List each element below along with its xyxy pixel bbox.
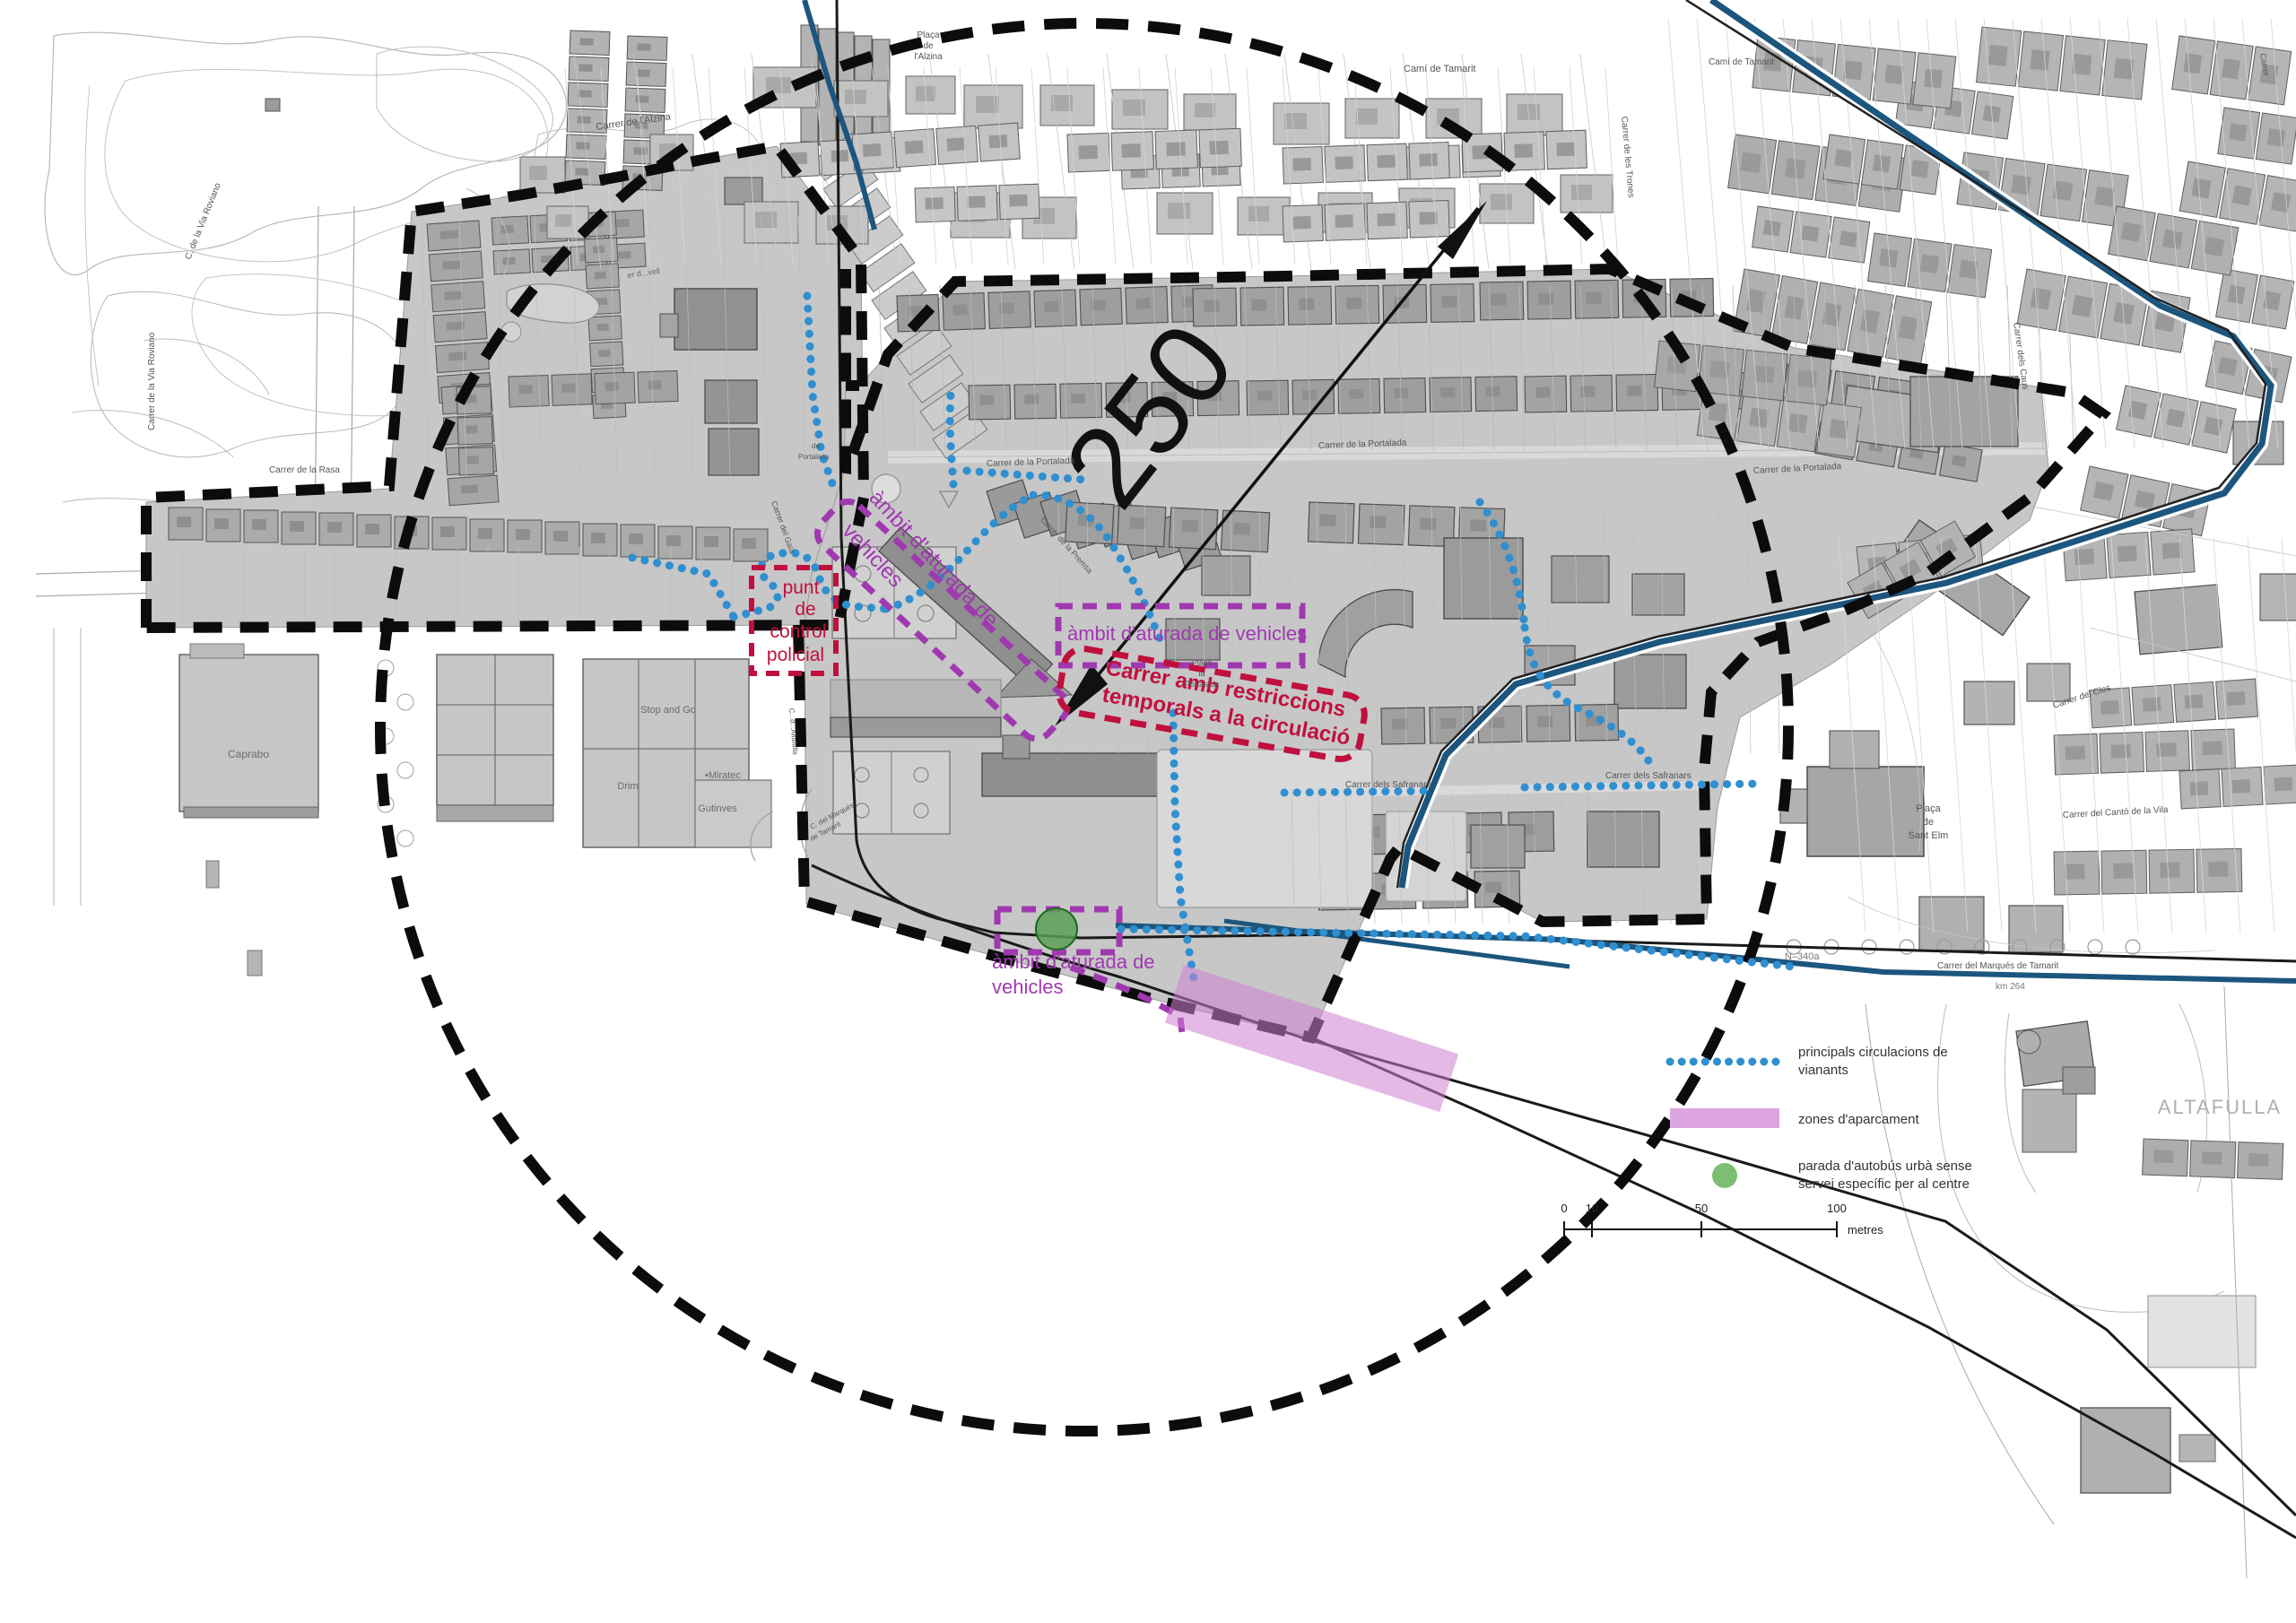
svg-text:zones d'aparcament: zones d'aparcament	[1798, 1112, 1919, 1127]
svg-text:Carrer dels Safranars: Carrer dels Safranars	[1345, 780, 1431, 790]
svg-text:0: 0	[1561, 1202, 1567, 1215]
svg-text:N–340a: N–340a	[1785, 951, 1820, 962]
svg-text:de: de	[923, 41, 934, 51]
svg-text:Caprabo: Caprabo	[228, 748, 269, 760]
svg-text:Drim: Drim	[617, 781, 638, 792]
svg-text:vianants: vianants	[1798, 1063, 1848, 1078]
svg-text:la: la	[1198, 669, 1205, 678]
svg-text:10: 10	[1586, 1202, 1598, 1215]
svg-text:100: 100	[1827, 1202, 1847, 1215]
svg-text:Carrer dels Safranars: Carrer dels Safranars	[1605, 771, 1692, 781]
svg-text:de: de	[1923, 817, 1934, 828]
svg-text:Portalada: Portalada	[1185, 680, 1220, 689]
svg-text:•Miratec: •Miratec	[705, 770, 741, 781]
svg-text:Camí de Tamarit: Camí de Tamarit	[1709, 57, 1774, 67]
svg-text:principals circulacions de: principals circulacions de	[1798, 1045, 1948, 1060]
svg-text:àmbit d'aturada de vehicles: àmbit d'aturada de vehicles	[1067, 622, 1307, 645]
svg-text:vehicles: vehicles	[992, 976, 1063, 998]
svg-text:Plaça: Plaça	[1916, 803, 1941, 814]
svg-text:km 264: km 264	[1996, 982, 2025, 992]
svg-text:Camí de Tamarit: Camí de Tamarit	[1404, 64, 1476, 74]
svg-text:Stop and Go: Stop and Go	[640, 705, 696, 716]
svg-text:àmbit d'aturada de: àmbit d'aturada de	[992, 950, 1155, 973]
svg-text:Plaça: Plaça	[1192, 658, 1213, 667]
svg-text:metres: metres	[1848, 1223, 1883, 1237]
svg-text:de: de	[795, 599, 815, 620]
svg-text:parada d'autobús urbà sense: parada d'autobús urbà sense	[1798, 1159, 1972, 1174]
svg-text:Gutinves: Gutinves	[698, 803, 737, 814]
svg-text:servei específic per al centre: servei específic per al centre	[1798, 1176, 1970, 1192]
svg-text:control: control	[770, 621, 826, 642]
svg-text:punt: punt	[783, 577, 820, 598]
svg-text:ALTAFULLA: ALTAFULLA	[2158, 1096, 2282, 1118]
svg-text:l'Alzina: l'Alzina	[914, 52, 943, 62]
svg-text:Carrer de la Rasa: Carrer de la Rasa	[269, 465, 340, 475]
svg-text:de: de	[812, 442, 820, 450]
svg-text:Carrer de la Via Roviano: Carrer de la Via Roviano	[147, 332, 157, 430]
svg-text:Carrer del Marqués de Tama: Carrer del Marqués de Tamarit	[1937, 961, 2059, 971]
svg-text:policial: policial	[767, 645, 824, 665]
svg-text:Sant Elm: Sant Elm	[1909, 830, 1949, 841]
svg-text:Plaça: Plaça	[917, 30, 939, 40]
svg-text:50: 50	[1695, 1202, 1708, 1215]
svg-text:Portalada: Portalada	[798, 453, 830, 461]
